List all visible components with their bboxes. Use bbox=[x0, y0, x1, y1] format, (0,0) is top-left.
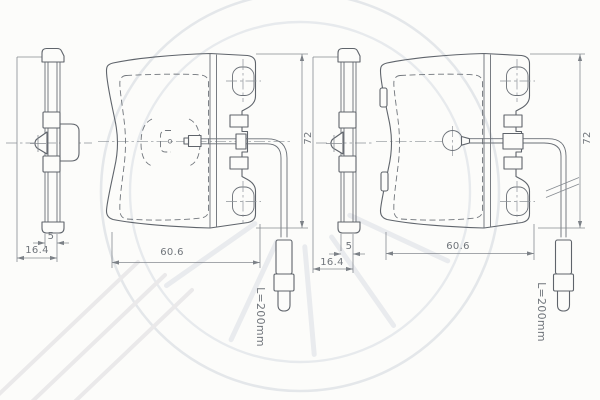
left-sensor-wire bbox=[201, 139, 287, 237]
right-wire-break-marks bbox=[546, 178, 579, 198]
left-wear-sensor-connector bbox=[274, 240, 294, 311]
right-clip-upper bbox=[339, 112, 356, 128]
right-width-label: 60.6 bbox=[441, 241, 475, 252]
left-sensor-length-label: L=200mm bbox=[252, 282, 268, 352]
left-spring-arrow bbox=[35, 132, 47, 154]
technical-drawing bbox=[0, 0, 600, 400]
right-side-top-cap bbox=[338, 49, 360, 63]
right-edge-tab-lower bbox=[381, 172, 388, 191]
right-backplate-lines bbox=[484, 54, 491, 229]
left-retainer-wing bbox=[60, 124, 79, 161]
right-sensor-taper bbox=[462, 137, 470, 146]
right-total-thickness-label: 16.4 bbox=[318, 257, 346, 268]
right-abutment-clip-lower bbox=[504, 157, 522, 169]
right-thickness-extension-line bbox=[313, 57, 338, 273]
right-wire-grommet bbox=[503, 134, 523, 150]
right-abutment-clip-upper bbox=[504, 115, 522, 127]
right-pad-front-view bbox=[376, 54, 585, 312]
right-front-centerline bbox=[376, 126, 453, 156]
right-friction-boundary bbox=[394, 74, 483, 220]
right-height-label: 72 bbox=[582, 127, 595, 149]
left-thickness-extension-line bbox=[17, 57, 44, 262]
left-wire-grommet bbox=[236, 134, 246, 149]
left-pad-thickness-label: 5 bbox=[44, 231, 58, 242]
left-sensor-tab bbox=[184, 138, 189, 144]
left-width-label: 60.6 bbox=[155, 247, 189, 258]
left-pad-front-view bbox=[98, 54, 308, 312]
left-piston-mark-left bbox=[141, 119, 152, 166]
left-sensor-body bbox=[189, 136, 202, 147]
right-pad-side-view bbox=[313, 49, 374, 274]
right-edge-tab-upper bbox=[380, 88, 387, 107]
right-side-bottom-cap bbox=[338, 222, 360, 233]
left-side-top-cap bbox=[42, 49, 64, 63]
right-sensor-length-label: L=200mm bbox=[533, 277, 549, 347]
right-pad-thickness-label: 5 bbox=[342, 241, 356, 252]
brake-pad-technical-drawing-page: { "drawing": { "left_pad": { "height": "… bbox=[0, 0, 600, 400]
right-spring-arrow bbox=[331, 132, 343, 154]
left-clip-lower bbox=[43, 156, 60, 172]
left-height-label: 72 bbox=[303, 127, 316, 149]
left-abutment-clip-upper bbox=[230, 115, 248, 127]
left-clip-upper bbox=[43, 112, 60, 128]
left-abutment-clip-lower bbox=[230, 157, 248, 169]
left-width-dim bbox=[112, 224, 260, 268]
left-pad-side-view bbox=[6, 49, 92, 263]
left-total-thickness-label: 16.4 bbox=[23, 245, 51, 256]
right-wear-sensor-connector bbox=[554, 240, 574, 311]
left-backplate-lines bbox=[210, 54, 217, 229]
right-height-dim bbox=[530, 54, 585, 228]
right-clip-lower bbox=[339, 156, 356, 172]
left-friction-boundary bbox=[120, 74, 209, 220]
